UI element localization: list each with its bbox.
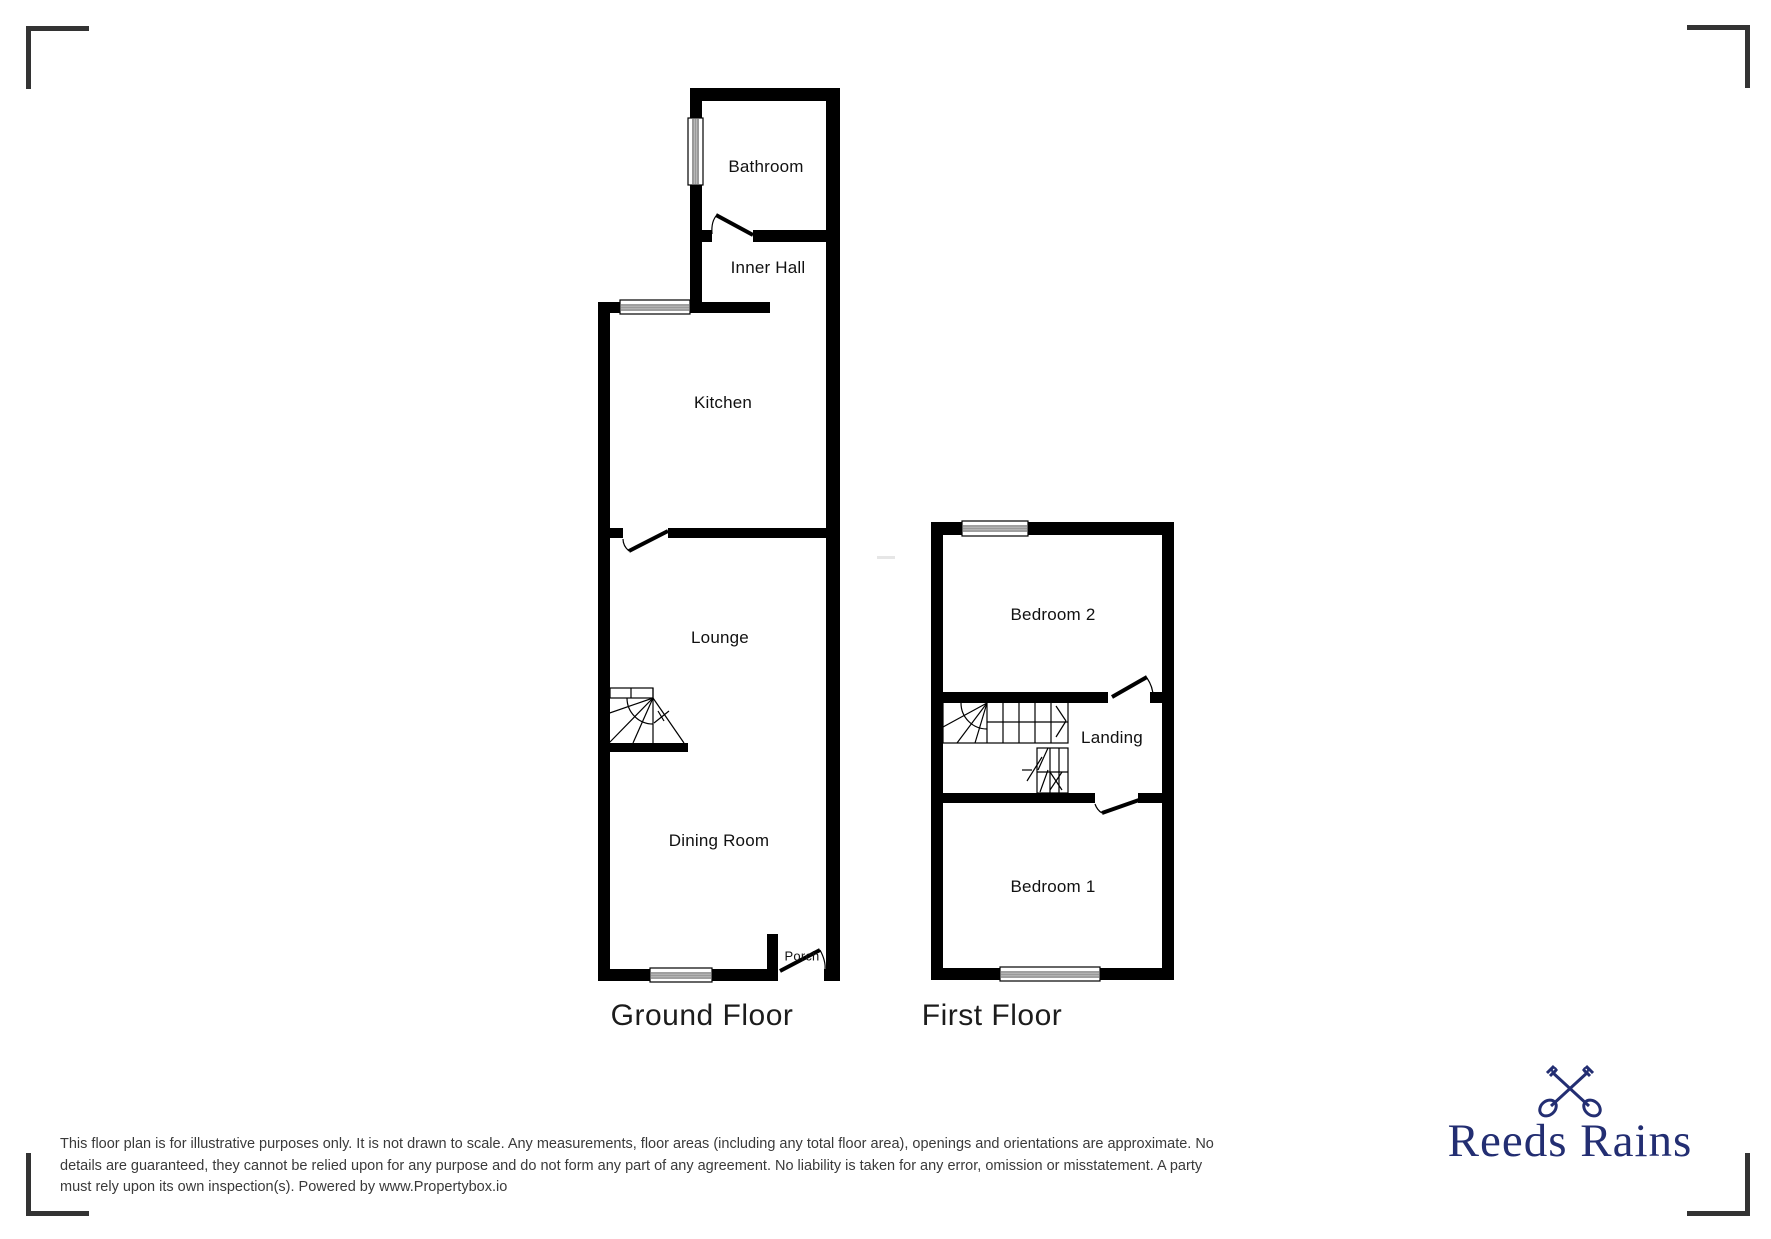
room-label-inner-hall: Inner Hall — [731, 258, 806, 278]
room-label-lounge: Lounge — [691, 628, 749, 648]
agency-logo-wordmark: Reeds Rains — [1448, 1114, 1693, 1168]
disclaimer-line-1: This floor plan is for illustrative purp… — [60, 1134, 1214, 1156]
first-floor-windows — [962, 521, 1100, 981]
disclaimer-line-3: must rely upon its own inspection(s). Po… — [60, 1177, 1214, 1199]
room-label-porch: Porch — [785, 949, 820, 964]
ground-floor-title: Ground Floor — [611, 999, 794, 1033]
disclaimer-text: This floor plan is for illustrative purp… — [60, 1134, 1214, 1199]
faint-artifact — [877, 556, 895, 559]
room-label-landing: Landing — [1081, 728, 1143, 748]
room-label-bedroom-1: Bedroom 1 — [1011, 877, 1096, 897]
first-floor-title: First Floor — [922, 999, 1063, 1033]
ground-floor-stairs — [601, 688, 684, 743]
room-label-bathroom: Bathroom — [728, 157, 803, 177]
floor-plan-drawing — [0, 0, 1771, 1239]
room-label-kitchen: Kitchen — [694, 393, 752, 413]
ground-floor-doors — [623, 215, 825, 971]
room-label-dining-room: Dining Room — [669, 831, 769, 851]
disclaimer-line-2: details are guaranteed, they cannot be r… — [60, 1156, 1214, 1178]
floorplan-page: Bathroom Inner Hall Kitchen Lounge Dinin… — [0, 0, 1771, 1239]
first-floor-stairs — [943, 701, 1068, 793]
first-floor-walls — [931, 522, 1174, 980]
room-label-bedroom-2: Bedroom 2 — [1011, 605, 1096, 625]
crossed-keys-icon — [1536, 1064, 1604, 1118]
